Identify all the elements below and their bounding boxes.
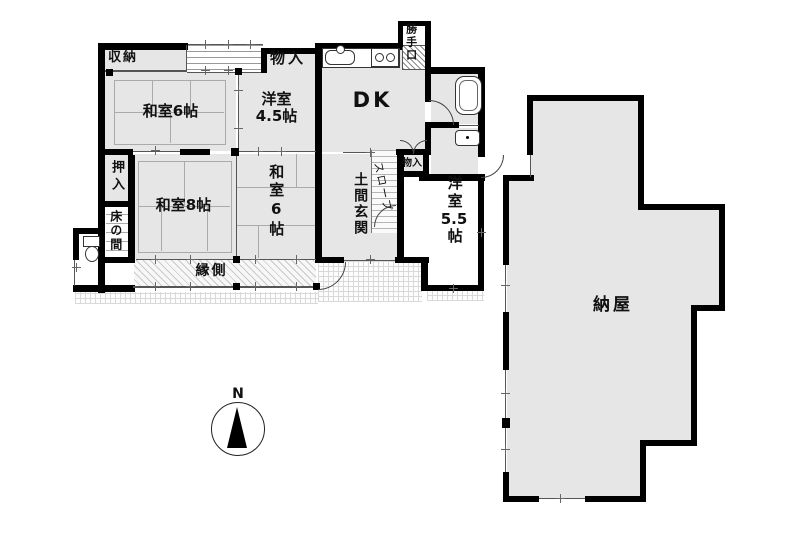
wall-tick (254, 147, 263, 156)
wall-segment (503, 312, 509, 370)
wall-tick (224, 66, 233, 75)
wall-segment (98, 43, 188, 50)
room-label-tokonoma: 床の間 (108, 210, 122, 252)
compass-north-label: N (222, 386, 254, 402)
wall-tick (366, 255, 375, 264)
toilet-bowl (85, 246, 99, 262)
wall-tick (449, 284, 458, 293)
wall-segment (425, 67, 485, 74)
pillar-marker (231, 148, 239, 156)
wall-tick (251, 282, 260, 291)
room-label-doma-genkan: 土間玄関 (352, 172, 368, 236)
wall-segment (527, 95, 533, 155)
bathtub-inner (459, 80, 478, 111)
wall-tick (201, 40, 210, 49)
faucet-icon (336, 45, 345, 54)
wall-tick (501, 389, 510, 398)
wall-segment (180, 149, 210, 155)
naya-fill (507, 179, 642, 498)
wall-segment (503, 472, 509, 502)
wall-tick (501, 445, 510, 454)
wall-segment (719, 204, 725, 311)
room-label-line: 洋室 (445, 175, 462, 211)
room-label-dk: DK (320, 88, 425, 112)
floor-plan: 収納 物入 勝手口 和室6帖 洋室 4.5帖 DK 押入 和室8帖 和室6帖 土… (0, 0, 800, 533)
room-label-oshiire: 押入 (108, 160, 123, 194)
wall-segment (640, 440, 646, 502)
wall-segment (315, 43, 322, 263)
room-label-youshitsu55: 洋室 5.5 帖 (432, 175, 476, 246)
room-label-youshitsu45: 洋室 4.5帖 (238, 91, 315, 126)
wall-segment (101, 257, 135, 263)
wall-segment (691, 305, 697, 446)
wall-tick (501, 281, 510, 290)
room-label-line: 4.5帖 (238, 108, 315, 125)
room-label-engawa: 縁側 (134, 263, 289, 279)
wall-segment (98, 43, 105, 293)
thin-wall-line (530, 155, 531, 177)
room-label-shunou: 収納 (108, 51, 138, 66)
wall-tick (201, 66, 210, 75)
thin-wall-line (133, 286, 316, 288)
stove-burner-icon (375, 53, 384, 62)
wall-segment (585, 496, 646, 502)
concrete-strip-left (75, 292, 318, 304)
wall-tick (151, 146, 160, 155)
room-label-katteguchi: 勝手口 (404, 23, 417, 62)
pillar-marker (235, 68, 242, 75)
pillar-marker (233, 283, 240, 290)
compass-needle-icon (227, 407, 247, 448)
room-label-washitsu6-mid: 和室6帖 (267, 164, 284, 239)
room-label-naya: 納屋 (563, 296, 663, 316)
wall-segment (425, 45, 431, 102)
wall-segment (73, 228, 79, 260)
naya-fill (640, 309, 693, 442)
wall-tick (292, 255, 301, 264)
room-label-monoire-top: 物入 (270, 50, 306, 67)
pillar-marker (106, 69, 113, 76)
tatami-line (296, 154, 297, 187)
wall-tick (477, 228, 486, 237)
thin-wall-line (136, 259, 316, 260)
wall-tick (366, 148, 375, 157)
thin-wall-line (186, 45, 187, 71)
wall-tick (224, 40, 233, 49)
room-label-monoire-mid: 物入 (400, 158, 424, 170)
wall-segment (638, 204, 725, 210)
wall-tick (556, 494, 565, 503)
room-label-line: 帖 (445, 228, 462, 246)
pillar-marker (233, 256, 240, 263)
room-label-washitsu8: 和室8帖 (131, 197, 236, 214)
wall-segment (502, 418, 510, 428)
wall-segment (101, 201, 134, 207)
wall-segment (640, 440, 697, 446)
wall-segment (638, 95, 644, 210)
room-label-line: 洋室 (238, 91, 315, 108)
wall-tick (246, 40, 255, 49)
wall-segment (503, 175, 509, 265)
door-swing-arc (481, 155, 504, 178)
room-label-washitsu6-top: 和室6帖 (105, 103, 236, 120)
wall-segment (527, 95, 644, 101)
thin-wall-line (236, 155, 237, 258)
room-label-line: 5.5 (441, 211, 468, 228)
thin-wall-line (459, 125, 479, 126)
wall-segment (73, 285, 135, 292)
wall-tick (72, 263, 81, 272)
naya-fill (640, 207, 721, 309)
washbasin-drain-icon (466, 136, 469, 139)
wall-tick (277, 147, 286, 156)
stove-burner-icon (386, 53, 395, 62)
wall-tick (186, 282, 195, 291)
wall-tick (292, 282, 301, 291)
thin-wall-line (105, 70, 187, 72)
wall-tick (151, 282, 160, 291)
tatami-line (258, 225, 259, 258)
